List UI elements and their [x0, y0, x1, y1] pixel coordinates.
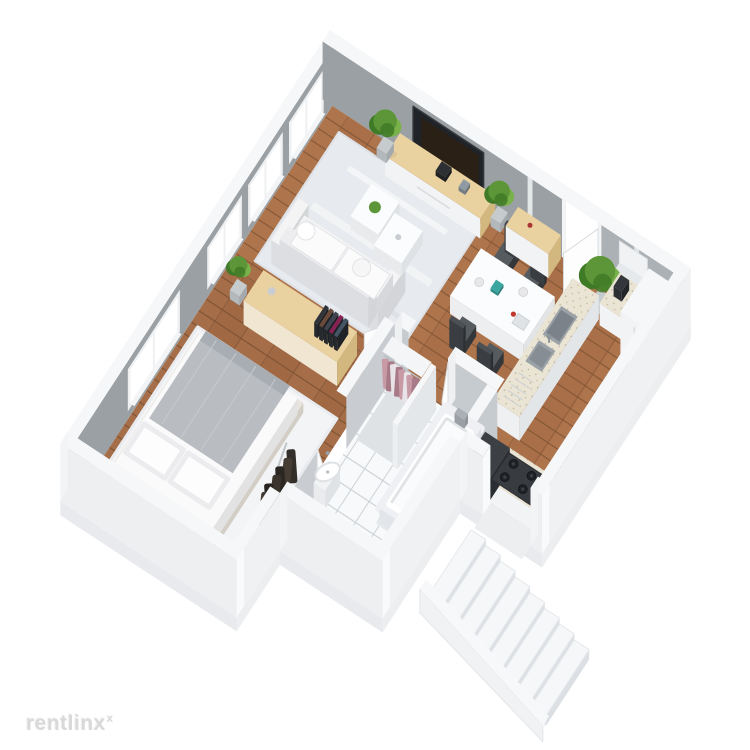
burner-center [512, 462, 515, 465]
burner-center [530, 474, 533, 477]
sideboard-decor [268, 287, 276, 295]
book-south [324, 329, 327, 345]
sofa-pillow [353, 259, 371, 277]
door-jamb [562, 199, 565, 259]
cabinet-decor [528, 223, 533, 228]
window-mullion [305, 98, 307, 135]
book-south [329, 332, 332, 348]
kitchen-south-wall-cap [542, 484, 549, 553]
bedroom-south-wall-cap [237, 548, 244, 617]
watermark-mark: x [107, 713, 114, 725]
apartment-3d-floorplan [0, 0, 750, 750]
burner-center [503, 476, 506, 479]
watermark-label: rentlinx [26, 712, 106, 735]
kitchen-south-wall-cap [483, 445, 490, 514]
table-decor [395, 234, 401, 240]
kitchen-south-wall-cap [460, 430, 467, 499]
table-plant [369, 201, 381, 213]
basin-faucet [326, 451, 330, 455]
bathroom-south-wall-cap [280, 482, 287, 551]
bathroom-south-wall-cap [383, 549, 390, 618]
foliage [234, 267, 245, 278]
red-cup [511, 312, 516, 317]
book-south [314, 322, 317, 338]
kitchen-south-wall-cap [531, 477, 539, 546]
closet-side-wall-south [393, 422, 398, 469]
staircase [420, 530, 589, 742]
sofa-pillow [297, 222, 315, 240]
chair-back-east [463, 325, 466, 357]
book-south [319, 325, 322, 341]
book-south [334, 335, 337, 351]
window-mullion [265, 161, 267, 198]
window-mullion [224, 224, 226, 261]
bedroom-south-wall-cap [60, 432, 67, 502]
burner-center [521, 488, 524, 491]
watermark: rentlinxx [26, 712, 113, 736]
basin-drain [326, 470, 329, 473]
plate [475, 278, 484, 287]
floor-plan-render: rentlinxx [0, 0, 750, 750]
window-mullion [153, 332, 155, 369]
plate [519, 288, 528, 297]
foliage [494, 193, 507, 206]
foliage [380, 123, 394, 137]
